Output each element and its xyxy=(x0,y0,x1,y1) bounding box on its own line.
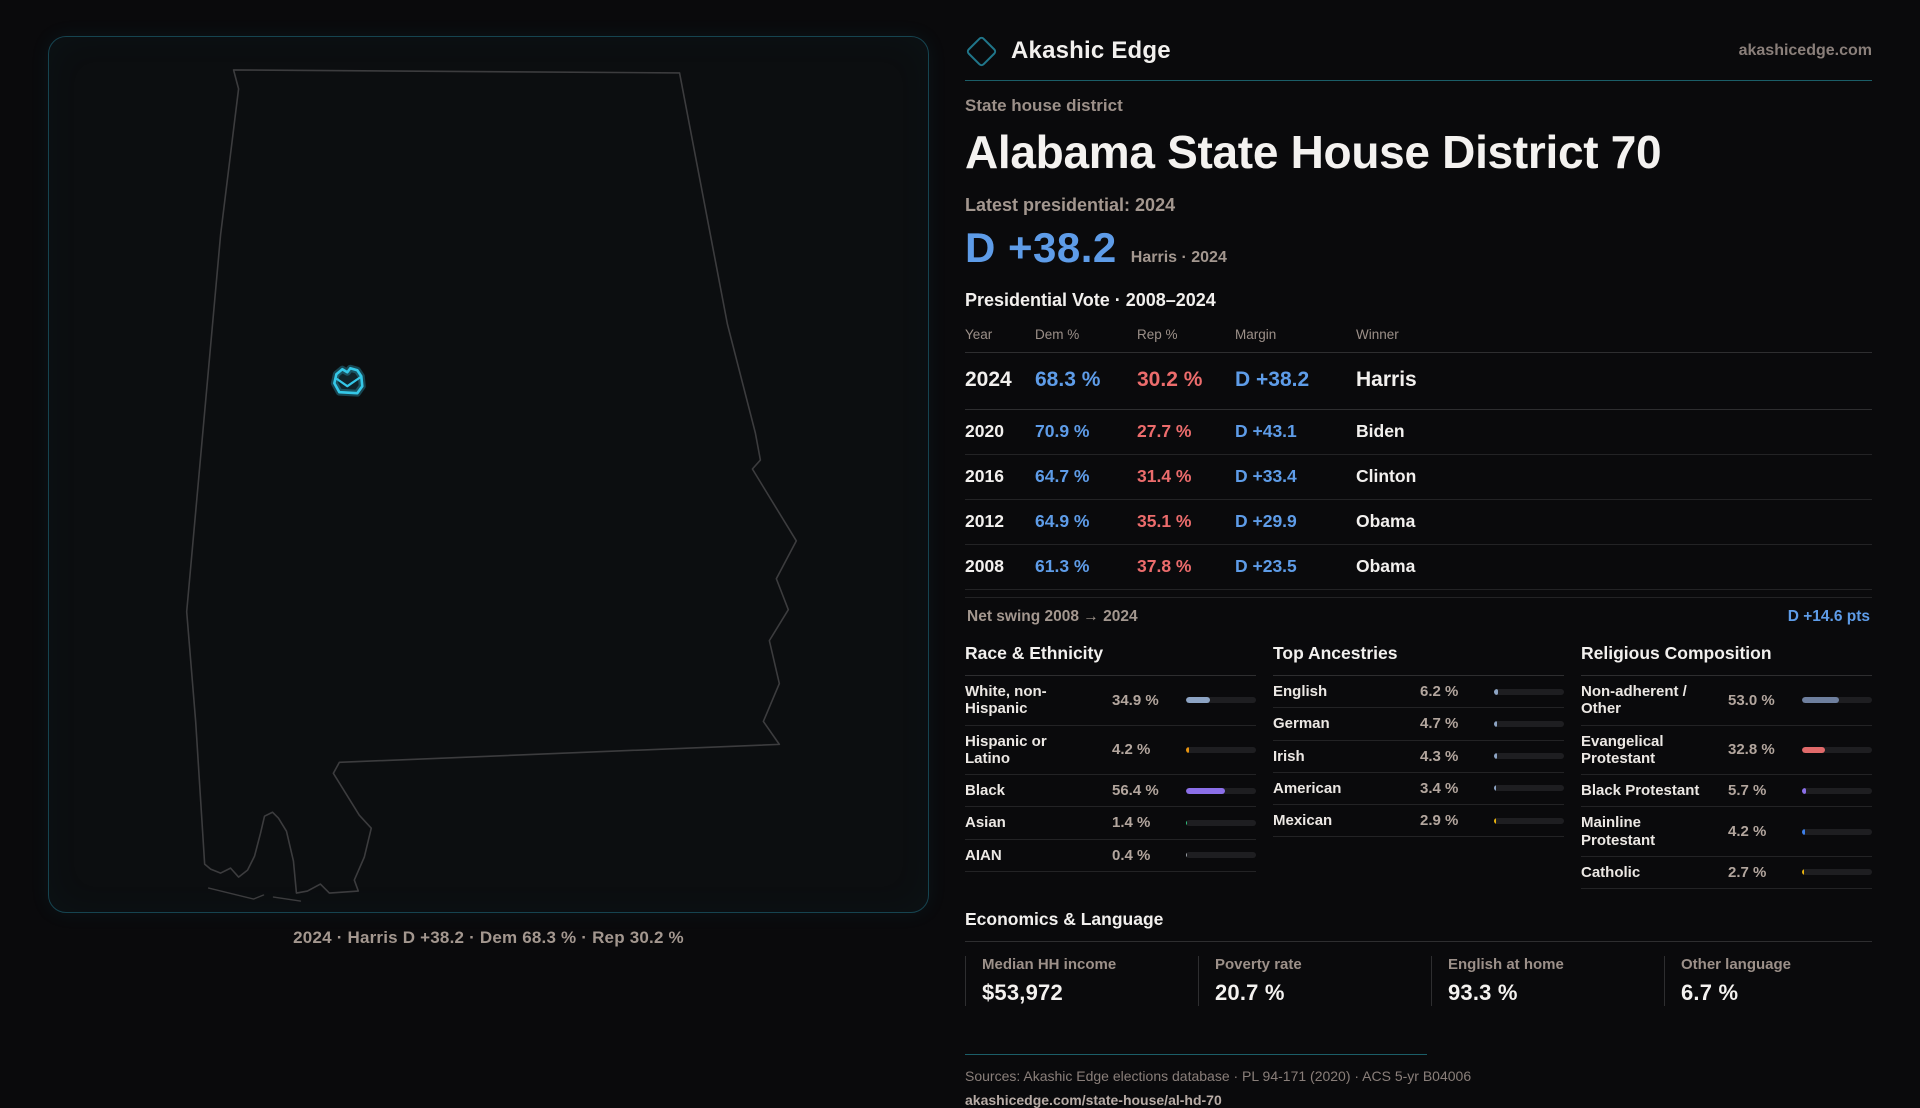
list-item: Non-adherent / Other 53.0 % xyxy=(1581,676,1872,726)
col-header-margin: Margin xyxy=(1235,327,1356,342)
demo-label: English xyxy=(1273,683,1420,700)
demographics-section: Race & Ethnicity White, non-Hispanic 34.… xyxy=(965,643,1872,889)
list-item: Mexican 2.9 % xyxy=(1273,805,1564,837)
stat-english-at-home: English at home 93.3 % xyxy=(1431,956,1664,1006)
alabama-outline xyxy=(187,70,797,893)
demo-bar xyxy=(1186,788,1256,794)
economics-stats: Median HH income $53,972 Poverty rate 20… xyxy=(965,956,1872,1006)
demo-value: 56.4 % xyxy=(1112,782,1176,799)
demo-label: Evangelical Protestant xyxy=(1581,733,1728,768)
district-map-panel xyxy=(48,36,929,913)
list-item: Evangelical Protestant 32.8 % xyxy=(1581,726,1872,776)
demo-bar xyxy=(1186,697,1256,703)
list-item: White, non-Hispanic 34.9 % xyxy=(965,676,1256,726)
cell-margin: D +38.2 xyxy=(1235,368,1356,392)
col-header-winner: Winner xyxy=(1356,327,1872,342)
demo-value: 2.7 % xyxy=(1728,864,1792,881)
list-item: American 3.4 % xyxy=(1273,773,1564,805)
page-url-link[interactable]: akashicedge.com/state-house/al-hd-70 xyxy=(965,1092,1872,1108)
stat-label: Median HH income xyxy=(982,956,1198,973)
cell-year: 2024 xyxy=(965,368,1035,392)
race-ethnicity-column: Race & Ethnicity White, non-Hispanic 34.… xyxy=(965,643,1256,889)
list-item: Catholic 2.7 % xyxy=(1581,857,1872,889)
list-item: Hispanic or Latino 4.2 % xyxy=(965,726,1256,776)
cell-margin: D +33.4 xyxy=(1235,466,1356,487)
footer-divider xyxy=(965,1054,1427,1055)
demo-value: 5.7 % xyxy=(1728,782,1792,799)
sources-line: Sources: Akashic Edge elections database… xyxy=(965,1068,1872,1084)
stat-value: 6.7 % xyxy=(1681,980,1897,1006)
demo-value: 0.4 % xyxy=(1112,847,1176,864)
list-item: AIAN 0.4 % xyxy=(965,840,1256,872)
cell-rep: 37.8 % xyxy=(1137,556,1235,577)
demo-value: 2.9 % xyxy=(1420,812,1484,829)
stat-poverty-rate: Poverty rate 20.7 % xyxy=(1198,956,1431,1006)
cell-year: 2016 xyxy=(965,466,1035,487)
stat-label: Poverty rate xyxy=(1215,956,1431,973)
demo-value: 1.4 % xyxy=(1112,814,1176,831)
cell-year: 2008 xyxy=(965,556,1035,577)
cell-winner: Harris xyxy=(1356,368,1872,392)
demo-label: Black xyxy=(965,782,1112,799)
latest-presidential-label: Latest presidential: 2024 xyxy=(965,195,1872,216)
demo-value: 4.7 % xyxy=(1420,715,1484,732)
map-caption: 2024 · Harris D +38.2 · Dem 68.3 % · Rep… xyxy=(48,928,929,948)
cell-margin: D +23.5 xyxy=(1235,556,1356,577)
religion-column: Religious Composition Non-adherent / Oth… xyxy=(1581,643,1872,889)
demo-value: 6.2 % xyxy=(1420,683,1484,700)
demo-label: Asian xyxy=(965,814,1112,831)
demo-bar xyxy=(1802,697,1872,703)
header-divider xyxy=(965,80,1872,81)
cell-dem: 64.7 % xyxy=(1035,466,1137,487)
list-item: Mainline Protestant 4.2 % xyxy=(1581,807,1872,857)
demo-label: American xyxy=(1273,780,1420,797)
stat-median-hh-income: Median HH income $53,972 xyxy=(965,956,1198,1006)
table-row: 2012 64.9 % 35.1 % D +29.9 Obama xyxy=(965,500,1872,545)
demo-bar xyxy=(1802,869,1872,875)
margin-detail: Harris · 2024 xyxy=(1131,249,1227,267)
demo-bar xyxy=(1186,747,1256,753)
demo-label: Non-adherent / Other xyxy=(1581,683,1728,718)
cell-margin: D +43.1 xyxy=(1235,421,1356,442)
demo-bar xyxy=(1494,753,1564,759)
demo-bar xyxy=(1186,852,1256,858)
table-row: 2016 64.7 % 31.4 % D +33.4 Clinton xyxy=(965,455,1872,500)
demo-label: Mainline Protestant xyxy=(1581,814,1728,849)
cell-year: 2020 xyxy=(965,421,1035,442)
demo-label: Catholic xyxy=(1581,864,1728,881)
cell-year: 2012 xyxy=(965,511,1035,532)
col-header-rep: Rep % xyxy=(1137,327,1235,342)
margin-value: D +38.2 xyxy=(965,224,1117,272)
pres-table-title: Presidential Vote · 2008–2024 xyxy=(965,290,1872,311)
cell-winner: Clinton xyxy=(1356,466,1872,487)
demo-bar xyxy=(1494,818,1564,824)
list-item: Black 56.4 % xyxy=(965,775,1256,807)
stat-label: Other language xyxy=(1681,956,1897,973)
cell-dem: 64.9 % xyxy=(1035,511,1137,532)
demo-bar xyxy=(1802,788,1872,794)
demo-bar xyxy=(1494,689,1564,695)
demo-bar xyxy=(1802,747,1872,753)
col-header-year: Year xyxy=(965,327,1035,342)
list-item: German 4.7 % xyxy=(1273,708,1564,740)
demo-value: 3.4 % xyxy=(1420,780,1484,797)
religion-title: Religious Composition xyxy=(1581,643,1872,676)
report-panel: Akashic Edge akashicedge.com State house… xyxy=(965,0,1872,1108)
demo-label: Irish xyxy=(1273,748,1420,765)
list-item: Irish 4.3 % xyxy=(1273,741,1564,773)
net-swing-value: D +14.6 pts xyxy=(1788,608,1870,626)
demo-label: Hispanic or Latino xyxy=(965,733,1112,768)
demo-label: Mexican xyxy=(1273,812,1420,829)
demo-value: 53.0 % xyxy=(1728,692,1792,709)
cell-winner: Obama xyxy=(1356,556,1872,577)
race-ethnicity-title: Race & Ethnicity xyxy=(965,643,1256,676)
col-header-dem: Dem % xyxy=(1035,327,1137,342)
economics-title: Economics & Language xyxy=(965,909,1872,942)
table-row: 2024 68.3 % 30.2 % D +38.2 Harris xyxy=(965,353,1872,410)
net-swing-row: Net swing 2008 → 2024 D +14.6 pts xyxy=(965,597,1872,626)
cell-rep: 27.7 % xyxy=(1137,421,1235,442)
district-70-shape[interactable] xyxy=(334,368,362,393)
stat-other-language: Other language 6.7 % xyxy=(1664,956,1897,1006)
list-item: Asian 1.4 % xyxy=(965,807,1256,839)
headline-margin: D +38.2 Harris · 2024 xyxy=(965,224,1872,272)
net-swing-label: Net swing 2008 → 2024 xyxy=(967,608,1138,626)
stat-value: 93.3 % xyxy=(1448,980,1664,1006)
demo-value: 4.2 % xyxy=(1728,823,1792,840)
demo-value: 34.9 % xyxy=(1112,692,1176,709)
demo-bar xyxy=(1186,820,1256,826)
cell-winner: Obama xyxy=(1356,511,1872,532)
ancestries-title: Top Ancestries xyxy=(1273,643,1564,676)
demo-label: Black Protestant xyxy=(1581,782,1728,799)
header: Akashic Edge akashicedge.com xyxy=(965,30,1872,72)
cell-rep: 35.1 % xyxy=(1137,511,1235,532)
demo-value: 4.2 % xyxy=(1112,741,1176,758)
table-row: 2020 70.9 % 27.7 % D +43.1 Biden xyxy=(965,410,1872,455)
demo-bar xyxy=(1802,829,1872,835)
cell-rep: 31.4 % xyxy=(1137,466,1235,487)
pres-table-header: Year Dem % Rep % Margin Winner xyxy=(965,323,1872,353)
demo-value: 4.3 % xyxy=(1420,748,1484,765)
demo-label: White, non-Hispanic xyxy=(965,683,1112,718)
cell-dem: 68.3 % xyxy=(1035,368,1137,392)
cell-rep: 30.2 % xyxy=(1137,368,1235,392)
demo-value: 32.8 % xyxy=(1728,741,1792,758)
demo-label: German xyxy=(1273,715,1420,732)
brand-diamond-icon xyxy=(965,35,998,68)
list-item: English 6.2 % xyxy=(1273,676,1564,708)
kicker: State house district xyxy=(965,96,1872,116)
alabama-map[interactable] xyxy=(49,37,928,912)
stat-value: $53,972 xyxy=(982,980,1198,1006)
cell-winner: Biden xyxy=(1356,421,1872,442)
brand-domain-link[interactable]: akashicedge.com xyxy=(1739,42,1872,60)
demo-label: AIAN xyxy=(965,847,1112,864)
demo-bar xyxy=(1494,721,1564,727)
list-item: Black Protestant 5.7 % xyxy=(1581,775,1872,807)
table-row: 2008 61.3 % 37.8 % D +23.5 Obama xyxy=(965,545,1872,590)
demo-bar xyxy=(1494,785,1564,791)
page-title: Alabama State House District 70 xyxy=(965,125,1872,179)
stat-label: English at home xyxy=(1448,956,1664,973)
stat-value: 20.7 % xyxy=(1215,980,1431,1006)
cell-margin: D +29.9 xyxy=(1235,511,1356,532)
cell-dem: 70.9 % xyxy=(1035,421,1137,442)
cell-dem: 61.3 % xyxy=(1035,556,1137,577)
coast-islands xyxy=(209,888,301,901)
pres-table: Year Dem % Rep % Margin Winner 2024 68.3… xyxy=(965,323,1872,626)
brand-name: Akashic Edge xyxy=(1011,37,1171,65)
ancestries-column: Top Ancestries English 6.2 % German 4.7 … xyxy=(1273,643,1564,889)
